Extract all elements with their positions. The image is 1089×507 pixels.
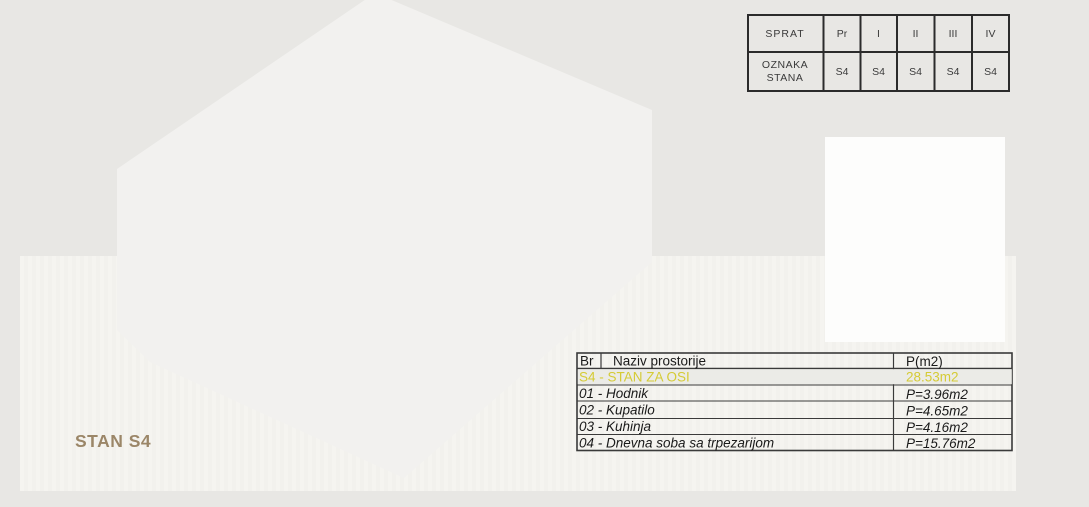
svg-text:01 - Hodnik: 01 - Hodnik xyxy=(579,386,649,401)
svg-text:S4: S4 xyxy=(836,66,849,78)
svg-text:IV: IV xyxy=(986,28,996,40)
svg-text:P=4.16m2: P=4.16m2 xyxy=(906,420,968,435)
svg-text:S4: S4 xyxy=(909,66,922,78)
svg-text:04 - Dnevna soba sa trpezarijo: 04 - Dnevna soba sa trpezarijom xyxy=(579,436,774,451)
svg-text:III: III xyxy=(949,28,958,40)
svg-text:II: II xyxy=(913,28,919,40)
svg-text:S4: S4 xyxy=(984,66,997,78)
svg-text:Pr: Pr xyxy=(837,28,848,40)
svg-text:P=15.76m2: P=15.76m2 xyxy=(906,436,976,451)
svg-text:I: I xyxy=(877,28,880,40)
svg-text:03 - Kuhinja: 03 - Kuhinja xyxy=(579,419,652,434)
svg-text:P=4.65m2: P=4.65m2 xyxy=(906,404,968,419)
svg-text:S4 - STAN ZA OSI: S4 - STAN ZA OSI xyxy=(579,370,690,385)
svg-text:P(m2): P(m2) xyxy=(906,354,943,369)
svg-text:OZNAKA: OZNAKA xyxy=(762,59,808,71)
svg-text:28.53m2: 28.53m2 xyxy=(906,370,959,385)
svg-text:STAN S4: STAN S4 xyxy=(75,431,151,451)
svg-text:Naziv prostorije: Naziv prostorije xyxy=(613,354,706,369)
svg-text:S4: S4 xyxy=(872,66,885,78)
svg-text:Br: Br xyxy=(580,354,594,369)
svg-text:SPRAT: SPRAT xyxy=(765,28,804,40)
svg-text:02 - Kupatilo: 02 - Kupatilo xyxy=(579,403,655,418)
svg-text:STANA: STANA xyxy=(767,72,804,84)
svg-text:S4: S4 xyxy=(947,66,960,78)
svg-text:P=3.96m2: P=3.96m2 xyxy=(906,387,968,402)
